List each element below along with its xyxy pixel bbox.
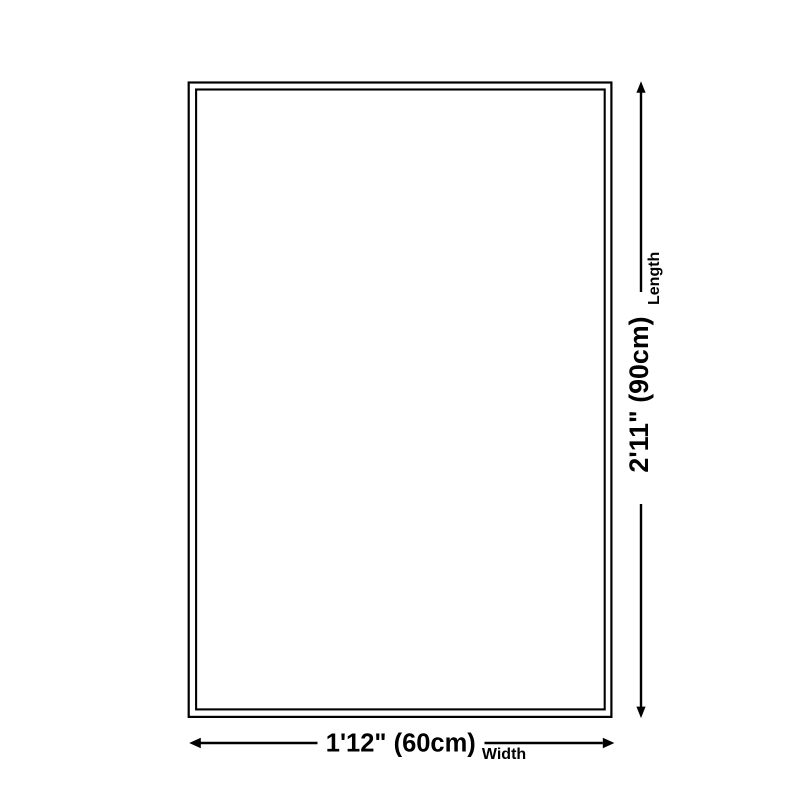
svg-text:2'11" (90cm): 2'11" (90cm)	[624, 316, 654, 472]
svg-text:1'12" (60cm): 1'12" (60cm)	[326, 730, 476, 758]
svg-text:Length: Length	[646, 252, 663, 305]
svg-text:Width: Width	[482, 746, 526, 763]
